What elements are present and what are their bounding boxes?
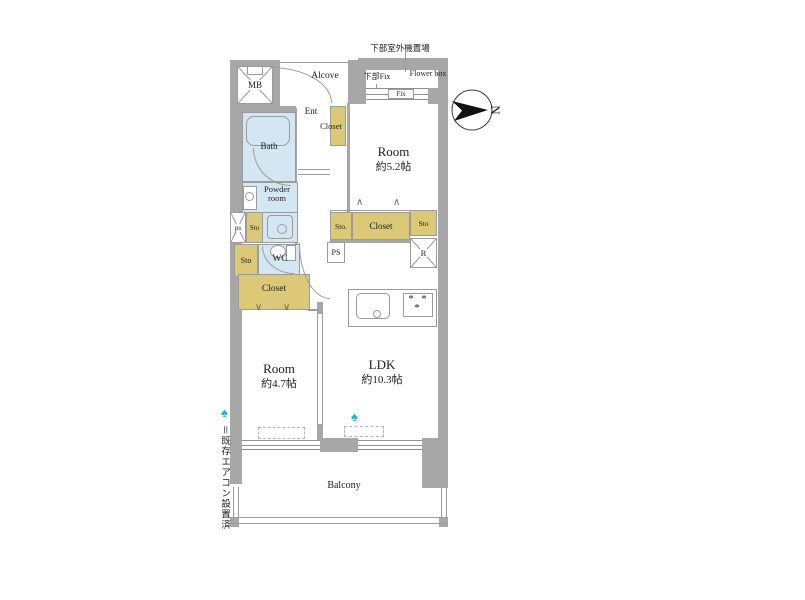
legend-text: ＝既存エアコン設置済 bbox=[219, 422, 229, 534]
south-window-ldk bbox=[358, 440, 422, 450]
ac-marker-icon: ♠ bbox=[351, 409, 358, 425]
closet-west-label: Closet bbox=[238, 284, 310, 294]
folding-door-mark: ∧ bbox=[356, 198, 363, 208]
bedroom-south-size: 約4.7帖 bbox=[240, 379, 318, 391]
storage-hall-lower: Sto bbox=[234, 244, 258, 277]
balcony-label: Balcony bbox=[300, 481, 388, 492]
storage-mid: Sto. bbox=[330, 212, 352, 240]
wc-label: WC bbox=[262, 254, 298, 264]
closet-mid: Closet bbox=[352, 212, 410, 240]
flower-box-label: Flower box bbox=[408, 70, 448, 78]
balcony-rail-right bbox=[441, 487, 447, 518]
bedroom-north-label: Room bbox=[350, 145, 437, 159]
svg-text:N: N bbox=[488, 105, 502, 115]
storage-mid-label: Sto. bbox=[335, 222, 347, 231]
ac-unit-outline bbox=[344, 426, 384, 437]
pipe-space-label: PS bbox=[332, 248, 341, 257]
wall-slider-stub-top bbox=[317, 302, 323, 314]
balcony-rail-left bbox=[233, 487, 239, 518]
outdoor-note-leader-line bbox=[405, 52, 406, 72]
refrigerator-label: R bbox=[420, 248, 428, 258]
fix-window: Fix bbox=[388, 89, 414, 99]
storage-hall-upper-label: Sto bbox=[250, 224, 259, 232]
bath-label: Bath bbox=[244, 142, 294, 152]
balcony-rail-bottom bbox=[233, 517, 448, 524]
floor-plan: Fix MB ps Sto Sto Sto. Closet Sto R PS bbox=[0, 0, 805, 600]
ldk-size: 約10.3帖 bbox=[332, 375, 432, 387]
ac-marker-icon: ♠ bbox=[221, 405, 228, 421]
folding-door-mark: ∨ bbox=[283, 303, 290, 313]
burner-icon: * bbox=[412, 303, 422, 315]
sink-bowl-icon bbox=[245, 192, 254, 201]
entrance-label: Ent bbox=[300, 107, 322, 117]
folding-door-mark: ∧ bbox=[393, 198, 400, 208]
wall-window-right-stub bbox=[428, 88, 438, 104]
wall-southeast-pillar bbox=[422, 438, 448, 488]
pipe-space-small: ps bbox=[230, 212, 246, 243]
washer-drum-icon bbox=[277, 224, 287, 234]
pipe-space-small-label: ps bbox=[234, 224, 242, 232]
alcove-label: Alcove bbox=[298, 71, 352, 81]
bedroom-south-label: Room bbox=[240, 362, 318, 376]
entry-step-line-2 bbox=[298, 174, 330, 175]
meter-box-symbol bbox=[247, 66, 263, 75]
refrigerator-space: R bbox=[410, 238, 437, 268]
storage-hall-lower-label: Sto bbox=[241, 256, 252, 265]
lower-fix-note: 下部Fix bbox=[362, 73, 392, 81]
compass: N bbox=[446, 86, 502, 138]
closet-mid-label: Closet bbox=[369, 221, 392, 231]
faucet-icon bbox=[373, 310, 381, 318]
south-window-bedroom bbox=[242, 440, 320, 450]
alcove-edge-line bbox=[280, 62, 348, 63]
powder-room-label: Powder room bbox=[258, 185, 296, 203]
wall-slider-stub-bottom bbox=[317, 424, 323, 440]
fix-window-label: Fix bbox=[396, 90, 405, 98]
ldk-label: LDK bbox=[332, 358, 432, 372]
meter-box-label: MB bbox=[247, 80, 263, 90]
folding-door-mark: ∨ bbox=[255, 303, 262, 313]
entrance-closet-label: Closet bbox=[312, 122, 350, 131]
bedroom-north-size: 約5.2帖 bbox=[350, 162, 437, 174]
outdoor-unit-note: 下部室外機置場 bbox=[352, 44, 448, 53]
storage-hall-upper: Sto bbox=[246, 212, 263, 243]
entry-step-line-1 bbox=[298, 169, 330, 170]
storage-east: Sto bbox=[410, 210, 437, 236]
ac-unit-outline bbox=[258, 427, 305, 439]
storage-east-label: Sto bbox=[418, 219, 428, 228]
wall-south-pillar bbox=[320, 438, 358, 452]
